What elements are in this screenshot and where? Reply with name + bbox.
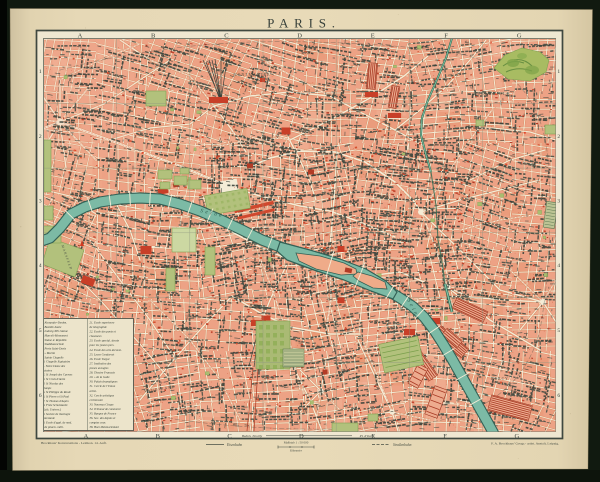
svg-text:Kilometer: Kilometer xyxy=(289,449,303,453)
svg-text:D: D xyxy=(299,433,304,440)
svg-text:chaussees: chaussees xyxy=(90,334,103,338)
svg-text:5: 5 xyxy=(39,328,42,334)
svg-text:Pl. d’Italie: Pl. d’Italie xyxy=(359,434,375,438)
svg-text:28. Theatre Francais: 28. Theatre Francais xyxy=(90,371,116,375)
svg-text:26. Ecole Turgot: 26. Ecole Turgot xyxy=(90,357,110,361)
svg-text:6: 6 xyxy=(557,393,560,399)
svg-text:BELLEVILLE: BELLEVILLE xyxy=(473,91,510,96)
svg-text:F: F xyxy=(444,32,448,39)
svg-text:36. Soc. des depots et: 36. Soc. des depots et xyxy=(90,416,116,420)
svg-text:29. » de la Gaite: 29. » de la Gaite xyxy=(90,375,111,379)
svg-text:14. St Nicolas des: 14. St Nicolas des xyxy=(42,381,64,385)
svg-text:24. Ecole des arts decorat.: 24. Ecole des arts decorat. xyxy=(90,348,122,352)
svg-text:4: 4 xyxy=(39,263,42,269)
svg-text:5: 5 xyxy=(557,328,560,334)
svg-text:27. Institution des: 27. Institution des xyxy=(90,361,112,365)
svg-text:Brockhaus’ Konversations - Lex: Brockhaus’ Konversations - Lexikon. 14. … xyxy=(41,441,107,445)
svg-text:Bahnh. Neuilly: Bahnh. Neuilly xyxy=(242,434,263,438)
svg-text:38. Hoer-Bebek-Denkml: 38. Hoer-Bebek-Denkml xyxy=(90,425,119,429)
svg-text:16. St Pierre et St Paul: 16. St Pierre et St Paul xyxy=(42,394,70,398)
svg-text:4: 4 xyxy=(557,263,560,269)
svg-text:de telegraphie: de telegraphie xyxy=(90,325,108,329)
svg-text:(Kath. Univers.): (Kath. Univers.) xyxy=(41,408,61,412)
svg-text:2: 2 xyxy=(39,134,42,140)
svg-text:PASSY: PASSY xyxy=(50,201,66,205)
svg-text:BERCY: BERCY xyxy=(491,377,509,381)
svg-text:21. Ecole superieure: 21. Ecole superieure xyxy=(90,321,115,325)
svg-text:A: A xyxy=(84,433,89,440)
svg-text:1: 1 xyxy=(557,69,560,75)
svg-text:12. St Joseph des Carmes: 12. St Joseph des Carmes xyxy=(42,373,74,377)
svg-text:D: D xyxy=(297,32,302,39)
svg-text:C: C xyxy=(227,433,231,440)
svg-text:6: 6 xyxy=(39,393,42,399)
svg-text:pour les jeunes pers.: pour les jeunes pers. xyxy=(89,343,115,347)
svg-text:6. Stadthausschule: 6. Stadthausschule xyxy=(42,342,65,346)
svg-text:A: A xyxy=(78,32,83,39)
svg-text:30. Palais dramatiques: 30. Palais dramatiques xyxy=(90,380,119,384)
svg-text:2: 2 xyxy=(557,134,560,140)
svg-text:G: G xyxy=(517,32,522,39)
svg-text:B: B xyxy=(156,433,161,440)
svg-text:3. Ludwig XIV.-Statue: 3. Ludwig XIV.-Statue xyxy=(42,329,69,333)
svg-text:et de pharm. milit.: et de pharm. milit. xyxy=(42,425,64,429)
svg-text:comptes cour.: comptes cour. xyxy=(90,421,107,425)
svg-text:E: E xyxy=(371,32,375,39)
svg-text:artist.: artist. xyxy=(90,389,97,393)
svg-text:32. Cercle artistique: 32. Cercle artistique xyxy=(90,393,115,397)
svg-text:jeunes aveugles: jeunes aveugles xyxy=(89,366,110,370)
svg-text:et litteraire: et litteraire xyxy=(90,398,104,402)
svg-text:10. Chapelle Expiatoire: 10. Chapelle Expiatoire xyxy=(42,360,71,364)
svg-text:33. Nouveau Cirque: 33. Nouveau Cirque xyxy=(90,402,115,406)
svg-text:Eisenbahn: Eisenbahn xyxy=(226,443,242,447)
svg-text:PARIS.: PARIS. xyxy=(267,16,341,31)
svg-text:G: G xyxy=(514,433,519,440)
svg-text:25. Lycee Condorcet: 25. Lycee Condorcet xyxy=(90,352,115,356)
svg-text:F: F xyxy=(443,433,447,440)
svg-text:11. Notre Dame des: 11. Notre Dame des xyxy=(42,364,66,368)
svg-text:C: C xyxy=(224,32,228,39)
svg-text:B: B xyxy=(151,32,156,39)
svg-text:22. Ecole des ponts et: 22. Ecole des ponts et xyxy=(90,330,116,334)
svg-text:34. Tribunal de commerce: 34. Tribunal de commerce xyxy=(90,407,122,411)
svg-text:23. Ecole special. dessin: 23. Ecole special. dessin xyxy=(90,339,120,343)
svg-text:35. Banque de France: 35. Banque de France xyxy=(90,412,117,416)
svg-text:31. Cercle de l'Union: 31. Cercle de l'Union xyxy=(90,384,116,388)
svg-text:1. Alexander-Denkm.: 1. Alexander-Denkm. xyxy=(42,321,68,325)
svg-text:Maßstab 1 : 50 000: Maßstab 1 : 50 000 xyxy=(284,441,309,445)
svg-text:18. Freie Schulstaette: 18. Freie Schulstaette xyxy=(42,403,69,407)
svg-text:Straßenbahn: Straßenbahn xyxy=(393,443,412,447)
svg-text:MONTMARTRE: MONTMARTRE xyxy=(233,73,270,77)
svg-text:3: 3 xyxy=(557,199,560,205)
svg-text:3: 3 xyxy=(39,199,42,205)
svg-text:1: 1 xyxy=(39,69,42,75)
